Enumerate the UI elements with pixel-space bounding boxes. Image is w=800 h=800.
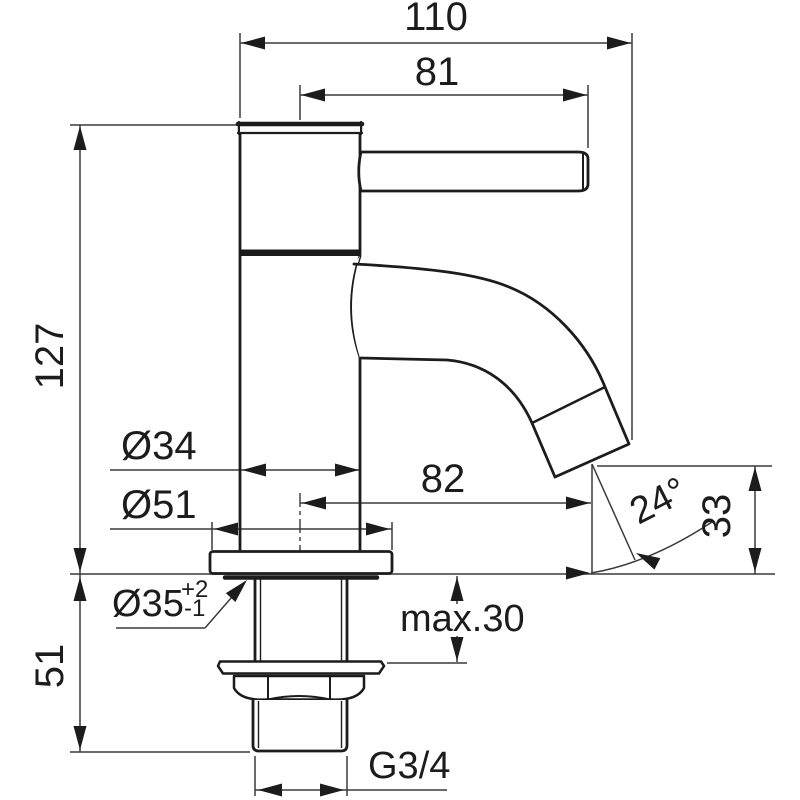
dim-hole-diameter: Ø35 (112, 583, 184, 625)
hex-nut (234, 676, 364, 700)
dim-body-diameter: Ø34 (121, 424, 197, 468)
faucet-outline (210, 122, 629, 751)
dimension-arrowheads (74, 37, 762, 797)
dim-max-deck-thickness: max.30 (400, 598, 525, 640)
faucet-cap (238, 122, 362, 134)
technical-drawing: 110 81 127 Ø34 Ø51 82 24° 33 max.30 Ø35 … (0, 0, 800, 800)
dim-height-above-deck: 127 (28, 323, 72, 390)
faucet-handle (359, 152, 588, 191)
dim-outlet-angle: 24° (623, 470, 693, 534)
dim-base-diameter: Ø51 (121, 483, 197, 527)
dim-handle-reach: 81 (415, 50, 460, 94)
dim-thread-size: G3/4 (368, 745, 450, 787)
washer (218, 662, 384, 674)
dim-hole-tolerance-lower: -1 (184, 595, 205, 622)
faucet-spout (352, 256, 629, 477)
base-flange (210, 552, 392, 578)
threaded-shank-lower (253, 700, 347, 751)
dim-outlet-height: 33 (695, 494, 739, 539)
dim-spout-reach: 82 (421, 457, 466, 501)
dim-overall-width: 110 (404, 0, 468, 39)
drawing-canvas: 110 81 127 Ø34 Ø51 82 24° 33 max.30 Ø35 … (0, 0, 800, 800)
dim-shank-length: 51 (28, 644, 72, 689)
faucet-body (239, 134, 361, 551)
body-joint-ring (239, 250, 361, 257)
threaded-shank-upper (255, 579, 347, 661)
dimension-lines (70, 33, 775, 796)
